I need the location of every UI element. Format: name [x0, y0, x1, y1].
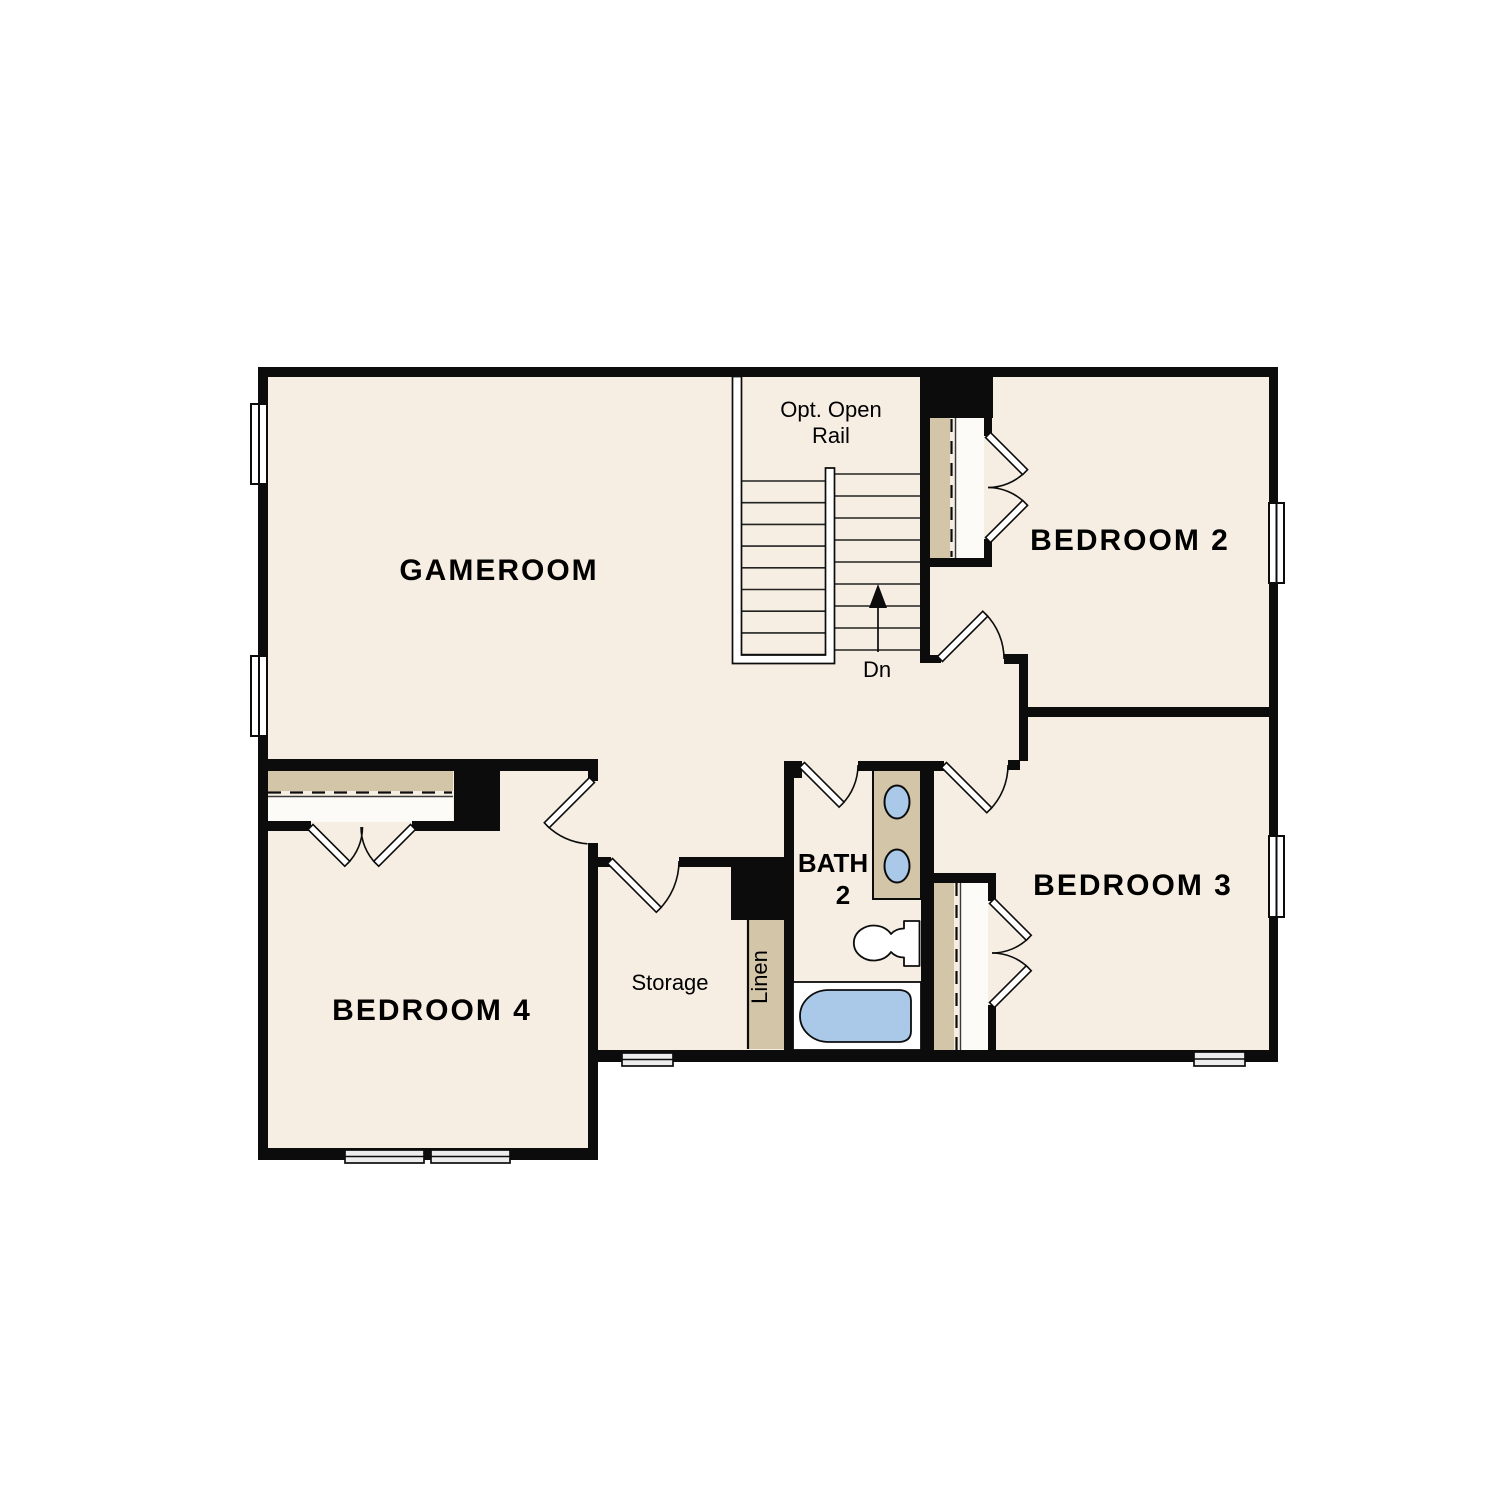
svg-text:2: 2: [836, 880, 850, 910]
svg-text:Linen: Linen: [747, 950, 772, 1004]
svg-text:BEDROOM 4: BEDROOM 4: [332, 994, 532, 1027]
svg-text:BATH: BATH: [798, 848, 868, 878]
svg-text:BEDROOM 3: BEDROOM 3: [1033, 869, 1233, 902]
svg-text:BEDROOM 2: BEDROOM 2: [1030, 524, 1230, 557]
svg-text:Storage: Storage: [631, 970, 708, 995]
svg-text:GAMEROOM: GAMEROOM: [399, 554, 598, 587]
svg-text:Rail: Rail: [812, 423, 850, 448]
svg-text:Opt. Open: Opt. Open: [780, 397, 882, 422]
svg-text:Dn: Dn: [863, 657, 891, 682]
